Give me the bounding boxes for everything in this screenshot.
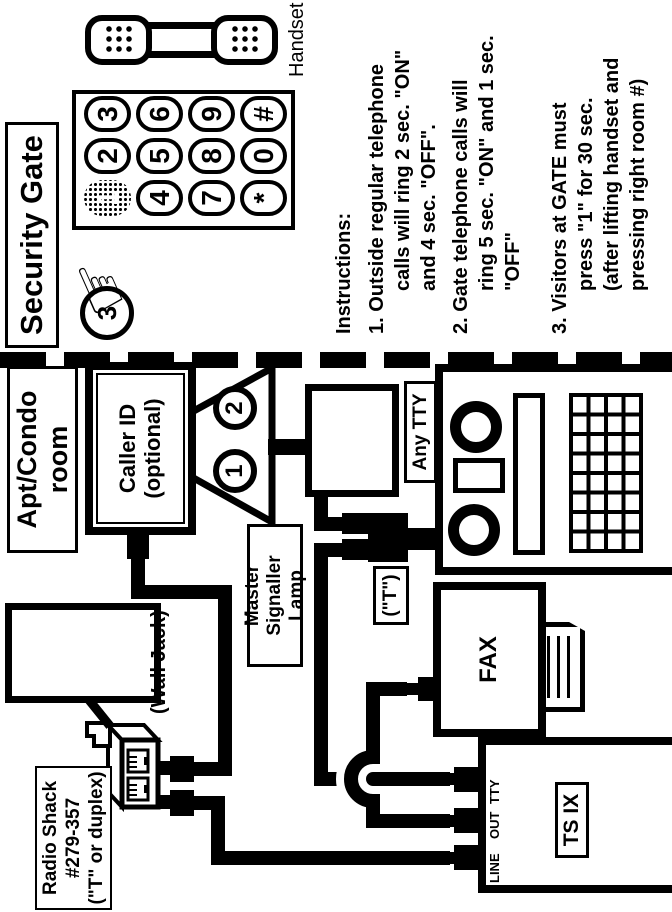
keypad-key-hash: # bbox=[240, 96, 287, 132]
adapter-label-line1: Radio Shack bbox=[39, 781, 62, 895]
instruction-line: pressing right room #) bbox=[627, 79, 650, 291]
room-panel-title: Apt/Condo room bbox=[7, 366, 78, 553]
gate-panel-title: Security Gate bbox=[5, 122, 59, 348]
speaker-dots-icon bbox=[104, 26, 133, 55]
keypad-key-9: 9 bbox=[188, 96, 235, 132]
caller-id-line1: Caller ID bbox=[116, 404, 141, 493]
instruction-line: ring 5 sec. "ON" and 1 sec. bbox=[476, 35, 499, 291]
handset-icon bbox=[85, 15, 278, 65]
adapter-label-line2: #279-357 bbox=[62, 798, 85, 878]
duplex-plug-2-stub bbox=[158, 795, 172, 809]
duplex-plug-1-body bbox=[170, 756, 194, 782]
keypad-key-1: 1 bbox=[84, 180, 131, 216]
tsix-port-out-label: OUT bbox=[487, 812, 502, 839]
instruction-line: calls will ring 2 sec. "ON" bbox=[392, 50, 415, 291]
wire-duplex-to-tsix-line bbox=[188, 803, 450, 858]
caller-id-stub bbox=[127, 533, 149, 559]
keypad-key-3: 3 bbox=[84, 96, 131, 132]
room-title-line2: room bbox=[43, 426, 73, 494]
keypad-key-2: 2 bbox=[84, 138, 131, 174]
tty-plug-stub bbox=[442, 773, 456, 785]
instruction-line: (after lifting handset and bbox=[601, 58, 624, 291]
tty-keyboard bbox=[569, 393, 643, 553]
tsix-port-line-label: LINE bbox=[487, 853, 502, 883]
lamp-stub bbox=[268, 439, 308, 455]
duplex-adapter-label: Radio Shack #279-357 ("T" or duplex) bbox=[35, 766, 112, 910]
diagram-page: Apt/Condo room (Wall Jack) Radio Shack #… bbox=[0, 0, 672, 912]
master-label-line1: Master Signaller bbox=[242, 527, 286, 664]
keypad-key-star: * bbox=[240, 180, 287, 216]
wall-jack-box bbox=[5, 603, 161, 703]
instruction-line: 3. Visitors at GATE must bbox=[549, 102, 572, 334]
lamp-bulb-1: 1 bbox=[213, 449, 257, 493]
out-plug-body bbox=[454, 808, 478, 833]
keypad-key-0: 0 bbox=[240, 138, 287, 174]
instruction-line: 1. Outside regular telephone bbox=[366, 64, 389, 334]
duplex-plug-2-body bbox=[170, 790, 194, 816]
tsix-label: TS IX bbox=[555, 782, 589, 858]
wall-jack-label: (Wall Jack) bbox=[148, 610, 171, 714]
fax-box: FAX bbox=[433, 582, 546, 737]
instruction-line: "OFF" bbox=[502, 232, 525, 291]
instruction-line: press "1" for 30 sec. bbox=[575, 97, 598, 291]
fax-plug-body bbox=[418, 677, 434, 701]
t-adapter-body bbox=[368, 513, 408, 562]
master-signaller-lamp-label: Master Signaller Lamp bbox=[247, 524, 303, 667]
tty-display bbox=[513, 393, 545, 555]
line-plug-body bbox=[454, 845, 478, 870]
t-adapter-stub bbox=[408, 528, 436, 550]
tty-coupler-cup-right bbox=[450, 401, 502, 453]
tty-cradle bbox=[453, 458, 505, 493]
caller-id-line2: (optional) bbox=[141, 398, 166, 498]
master-label-line2: Lamp bbox=[286, 570, 308, 621]
handset-earpiece bbox=[85, 15, 152, 65]
lamp-bulb-2: 2 bbox=[213, 386, 257, 430]
keypad-key-4: 4 bbox=[136, 180, 183, 216]
room-title-line1: Apt/Condo bbox=[12, 391, 42, 529]
duplex-plug-1-stub bbox=[158, 761, 172, 775]
gate-keypad: 1 2 3 4 5 6 7 8 9 * 0 # bbox=[72, 90, 295, 230]
keypad-key-7: 7 bbox=[188, 180, 235, 216]
t-adapter-plug-1 bbox=[342, 513, 370, 534]
adapter-label-line3: ("T" or duplex) bbox=[85, 771, 108, 904]
t-adapter-plug-2 bbox=[342, 539, 370, 560]
caller-id-box: Caller ID (optional) bbox=[85, 362, 196, 535]
tty-coupler-cup-left bbox=[448, 504, 500, 556]
instructions-heading: Instructions: bbox=[333, 213, 356, 334]
keypad-key-8: 8 bbox=[188, 138, 235, 174]
out-plug-stub bbox=[442, 815, 456, 827]
fax-plug-stub bbox=[402, 683, 420, 695]
keypad-key-6: 6 bbox=[136, 96, 183, 132]
tsix-port-tty-label: TTY bbox=[487, 779, 502, 804]
line-plug-stub bbox=[442, 852, 456, 864]
mic-dots-icon bbox=[230, 26, 259, 55]
instruction-line: 2. Gate telephone calls will bbox=[450, 79, 473, 334]
master-signaller-box bbox=[305, 384, 399, 497]
instruction-line: and 4 sec. "OFF". bbox=[418, 124, 441, 291]
keypad-key-5: 5 bbox=[136, 138, 183, 174]
any-tty-label: Any TTY bbox=[404, 381, 437, 483]
handset-label: Handset bbox=[286, 3, 309, 78]
t-adapter-label: ("T") bbox=[373, 566, 409, 625]
tty-plug-body bbox=[454, 767, 478, 792]
handset-mouthpiece bbox=[211, 15, 278, 65]
